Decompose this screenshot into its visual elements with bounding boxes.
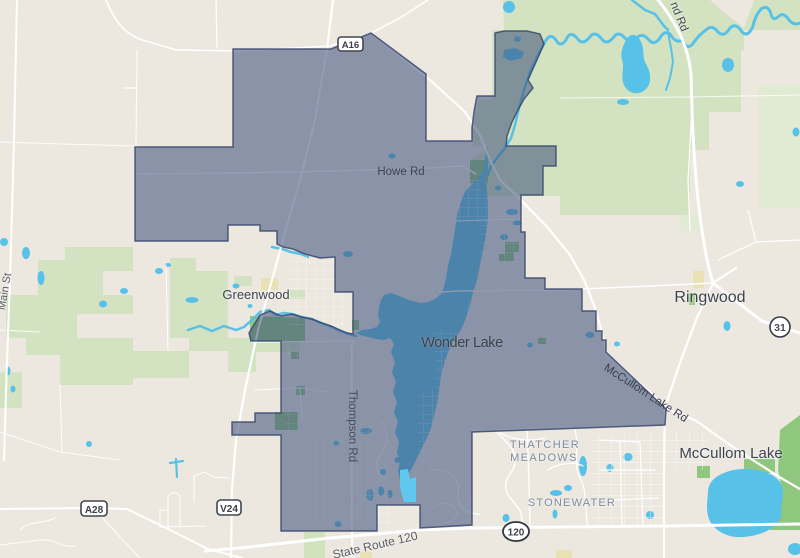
svg-text:STONEWATER: STONEWATER [528,497,616,509]
svg-text:A28: A28 [85,505,104,516]
svg-text:A16: A16 [342,40,359,51]
svg-text:Wonder Lake: Wonder Lake [421,335,503,351]
svg-text:V24: V24 [220,504,238,515]
svg-text:120: 120 [508,528,525,539]
svg-text:31: 31 [774,322,786,334]
svg-text:Ringwood: Ringwood [674,289,745,306]
svg-text:MEADOWS: MEADOWS [510,452,578,464]
svg-text:Thompson Rd: Thompson Rd [346,390,358,462]
svg-text:Greenwood: Greenwood [222,287,289,302]
svg-text:Howe Rd: Howe Rd [377,166,424,178]
svg-text:THATCHER: THATCHER [510,439,580,451]
svg-text:McCullom Lake: McCullom Lake [679,445,782,462]
